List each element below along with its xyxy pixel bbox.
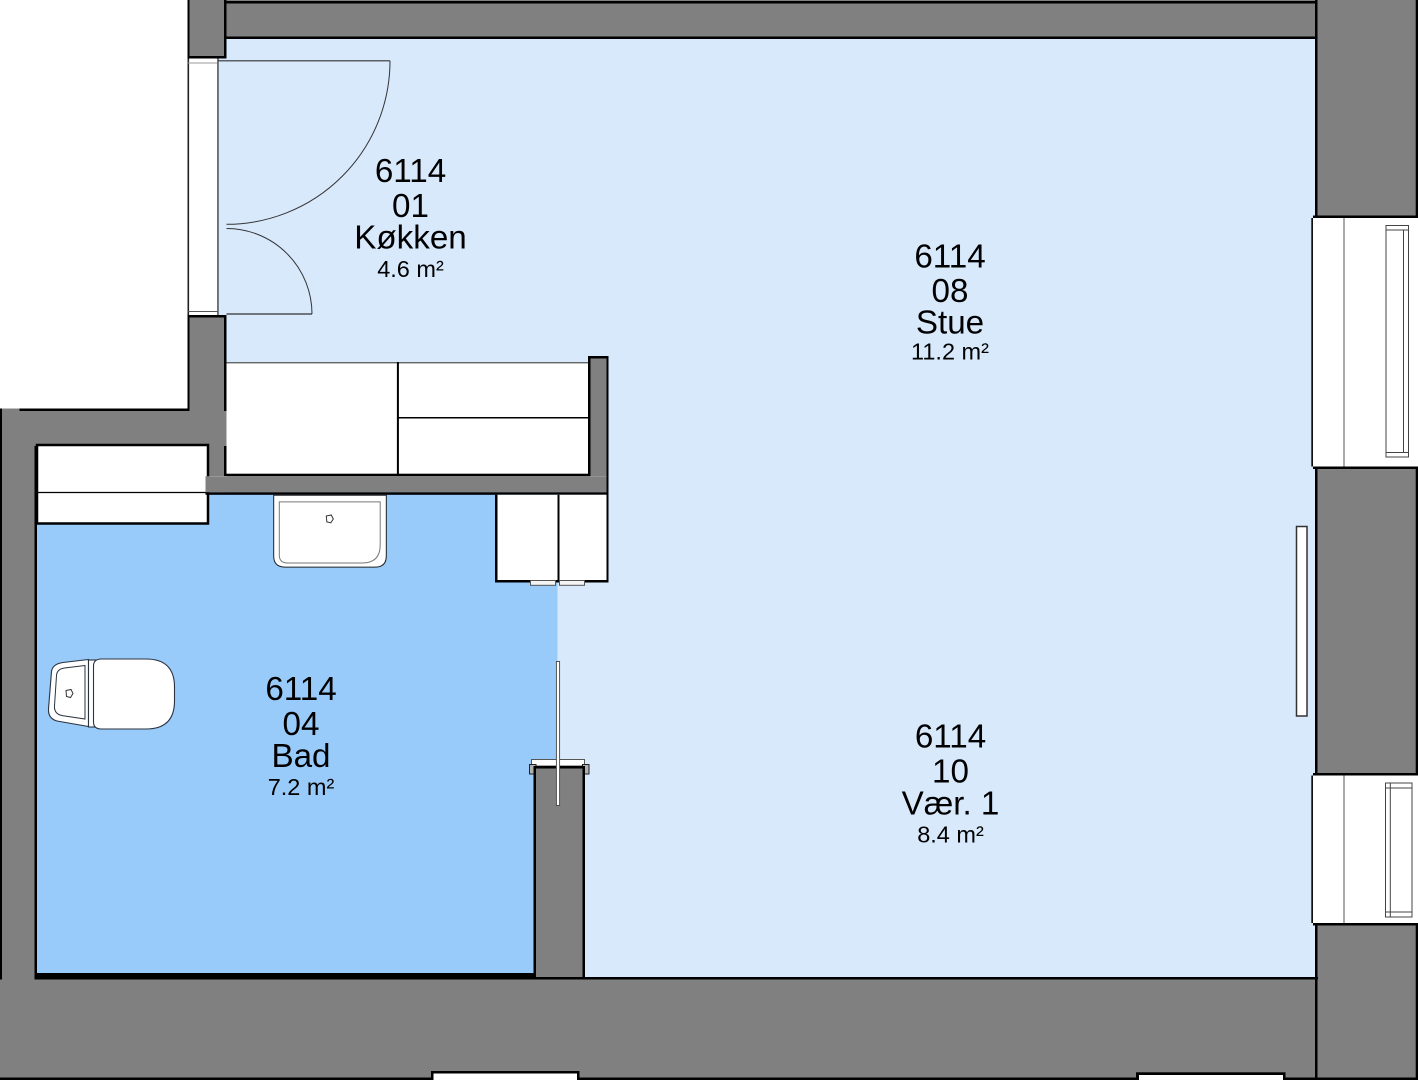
svg-text:11.2 m²: 11.2 m² [911, 339, 989, 365]
svg-text:6114: 6114 [265, 671, 336, 708]
svg-text:8.4 m²: 8.4 m² [917, 822, 984, 848]
svg-text:6114: 6114 [914, 239, 985, 276]
svg-text:Bad: Bad [271, 738, 330, 775]
svg-text:Vær. 1: Vær. 1 [902, 786, 1000, 823]
svg-text:7.2 m²: 7.2 m² [268, 774, 335, 800]
svg-text:6114: 6114 [915, 719, 986, 756]
svg-text:4.6 m²: 4.6 m² [377, 256, 444, 282]
svg-text:Køkken: Køkken [354, 220, 467, 257]
svg-text:Stue: Stue [916, 305, 984, 342]
svg-text:6114: 6114 [375, 153, 446, 190]
